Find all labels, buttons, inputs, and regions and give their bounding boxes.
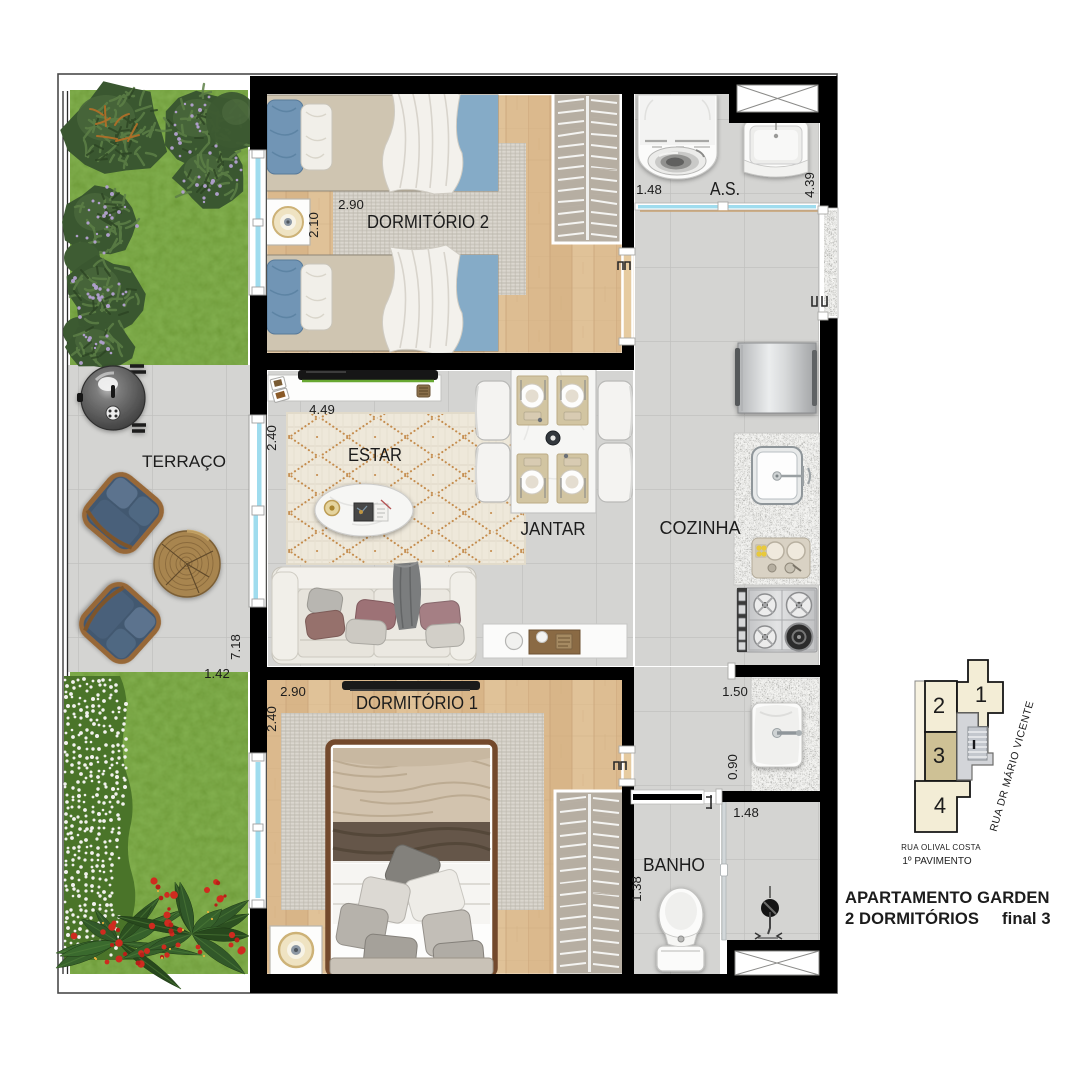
svg-text:TERRAÇO: TERRAÇO <box>142 452 226 471</box>
svg-text:2.90: 2.90 <box>280 684 306 699</box>
svg-text:DORMITÓRIO 2: DORMITÓRIO 2 <box>367 211 489 232</box>
svg-text:BANHO: BANHO <box>643 854 705 875</box>
svg-text:2.90: 2.90 <box>338 197 364 212</box>
svg-text:1.48: 1.48 <box>636 182 662 197</box>
svg-text:ESTAR: ESTAR <box>348 444 402 465</box>
svg-text:2.40: 2.40 <box>264 425 279 451</box>
svg-text:COZINHA: COZINHA <box>660 517 742 538</box>
svg-text:4.49: 4.49 <box>309 402 335 417</box>
svg-text:DORMITÓRIO 1: DORMITÓRIO 1 <box>356 692 478 713</box>
svg-text:1.38: 1.38 <box>629 876 644 902</box>
svg-text:4: 4 <box>934 793 946 818</box>
svg-text:1.48: 1.48 <box>733 805 759 820</box>
svg-text:1º PAVIMENTO: 1º PAVIMENTO <box>902 856 971 867</box>
svg-text:A.S.: A.S. <box>710 178 740 199</box>
svg-text:1.50: 1.50 <box>722 684 748 699</box>
svg-text:2.40: 2.40 <box>264 706 279 732</box>
svg-text:JANTAR: JANTAR <box>521 518 586 539</box>
svg-text:APARTAMENTO GARDEN: APARTAMENTO GARDEN <box>845 888 1050 907</box>
svg-text:4.39: 4.39 <box>802 172 817 198</box>
svg-text:2.10: 2.10 <box>306 212 321 238</box>
svg-text:2 DORMITÓRIOS: 2 DORMITÓRIOS <box>845 909 979 928</box>
svg-text:3: 3 <box>933 743 945 768</box>
svg-text:RUA OLIVAL COSTA: RUA OLIVAL COSTA <box>901 843 981 852</box>
svg-text:7.18: 7.18 <box>228 634 243 660</box>
svg-text:1.42: 1.42 <box>204 666 230 681</box>
svg-text:0.90: 0.90 <box>725 754 740 780</box>
svg-text:2: 2 <box>933 693 945 718</box>
svg-text:1: 1 <box>975 682 987 707</box>
svg-text:final 3: final 3 <box>1002 909 1051 928</box>
